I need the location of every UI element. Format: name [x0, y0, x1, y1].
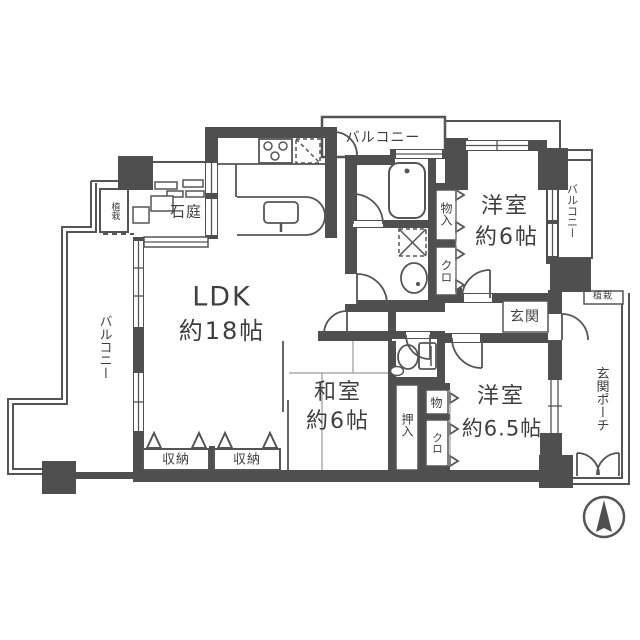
rock-garden-label: 石庭 — [170, 205, 202, 220]
wall-closet-left-upper — [428, 157, 436, 312]
pillar-bottom-left — [42, 461, 76, 494]
entrance-label: 玄関 — [510, 310, 540, 324]
wall-right-upper — [548, 290, 562, 314]
tatami-lines — [289, 341, 388, 470]
western-room1-size-label: 約6帖 — [475, 227, 539, 249]
wall-right-mid — [548, 340, 562, 380]
monoire-upper-label: 物入 — [440, 202, 452, 226]
ldk-label: LDK — [192, 284, 252, 311]
wall-washitsu-top — [318, 331, 392, 341]
porch-gate-doors — [577, 453, 619, 476]
refrigerator-space-icon — [296, 139, 320, 163]
closet-sep-3 — [418, 466, 450, 472]
balcony-left-label: バルコニー — [98, 315, 111, 380]
storage1-label: 収納 — [162, 454, 190, 467]
wall-bath-top — [345, 155, 395, 165]
wall-bottom — [133, 470, 545, 482]
washbasin-drain — [416, 282, 420, 286]
western-room1-label: 洋室 — [481, 196, 529, 218]
wall-block-right — [550, 258, 591, 292]
bathroom-door — [353, 194, 383, 224]
wall-toilet-east — [437, 331, 445, 385]
oshiire-label: 押入 — [401, 413, 413, 437]
japanese-room-size-label: 約6帖 — [306, 411, 370, 433]
folding-door-triangles-storage — [147, 433, 277, 448]
wall-right-step — [540, 433, 562, 457]
wall-bottom-ext — [76, 472, 134, 479]
front-door — [562, 314, 588, 340]
entrance-porch-label: 玄関ポーチ — [595, 367, 608, 432]
balcony-right-label: バルコニー — [567, 184, 578, 239]
wall-closet-left-lower — [418, 383, 426, 472]
closet-sep-2 — [418, 414, 450, 420]
planting-right-label: 植栽 — [593, 293, 613, 302]
western-room2-label: 洋室 — [477, 386, 525, 408]
bathtub-drain — [405, 169, 410, 174]
north-compass-icon — [584, 497, 624, 537]
closet-sep-1 — [418, 383, 450, 390]
floor-plan: LDK 約18帖 和室 約6帖 洋室 約6帖 洋室 約6.5帖 バルコニー バル… — [0, 0, 640, 640]
hall-door — [324, 311, 347, 334]
western-room2-size-label: 約6.5帖 — [462, 419, 542, 440]
stove-icon — [259, 139, 292, 163]
wall-corner-b — [538, 148, 568, 190]
washroom-door — [357, 274, 387, 304]
wall-kitchen-right — [325, 138, 337, 238]
ldk-size-label: 約18帖 — [179, 319, 266, 343]
closet-sep-u2 — [436, 240, 456, 247]
kitchen-counter — [218, 164, 325, 235]
wall-kitchen-top — [205, 127, 337, 138]
japanese-room-label: 和室 — [314, 382, 362, 404]
kitchen-sink — [264, 202, 298, 223]
washitsu-sliding-doors — [283, 341, 288, 470]
wall-western1-left-a — [452, 157, 462, 190]
pillar-top-left — [118, 156, 153, 190]
washing-machine-icon — [399, 229, 426, 256]
closet-upper-label: クロ — [440, 259, 452, 283]
washbasin-icon — [401, 263, 427, 293]
planting-left-label: 植栽 — [110, 202, 119, 220]
mono-lower-label: 物 — [430, 397, 443, 409]
balcony-top-label: バルコニー — [346, 131, 421, 145]
closet-lower-label: クロ — [432, 432, 443, 454]
storage2-label: 収納 — [233, 454, 261, 467]
wall-washitsu-right — [388, 341, 396, 470]
